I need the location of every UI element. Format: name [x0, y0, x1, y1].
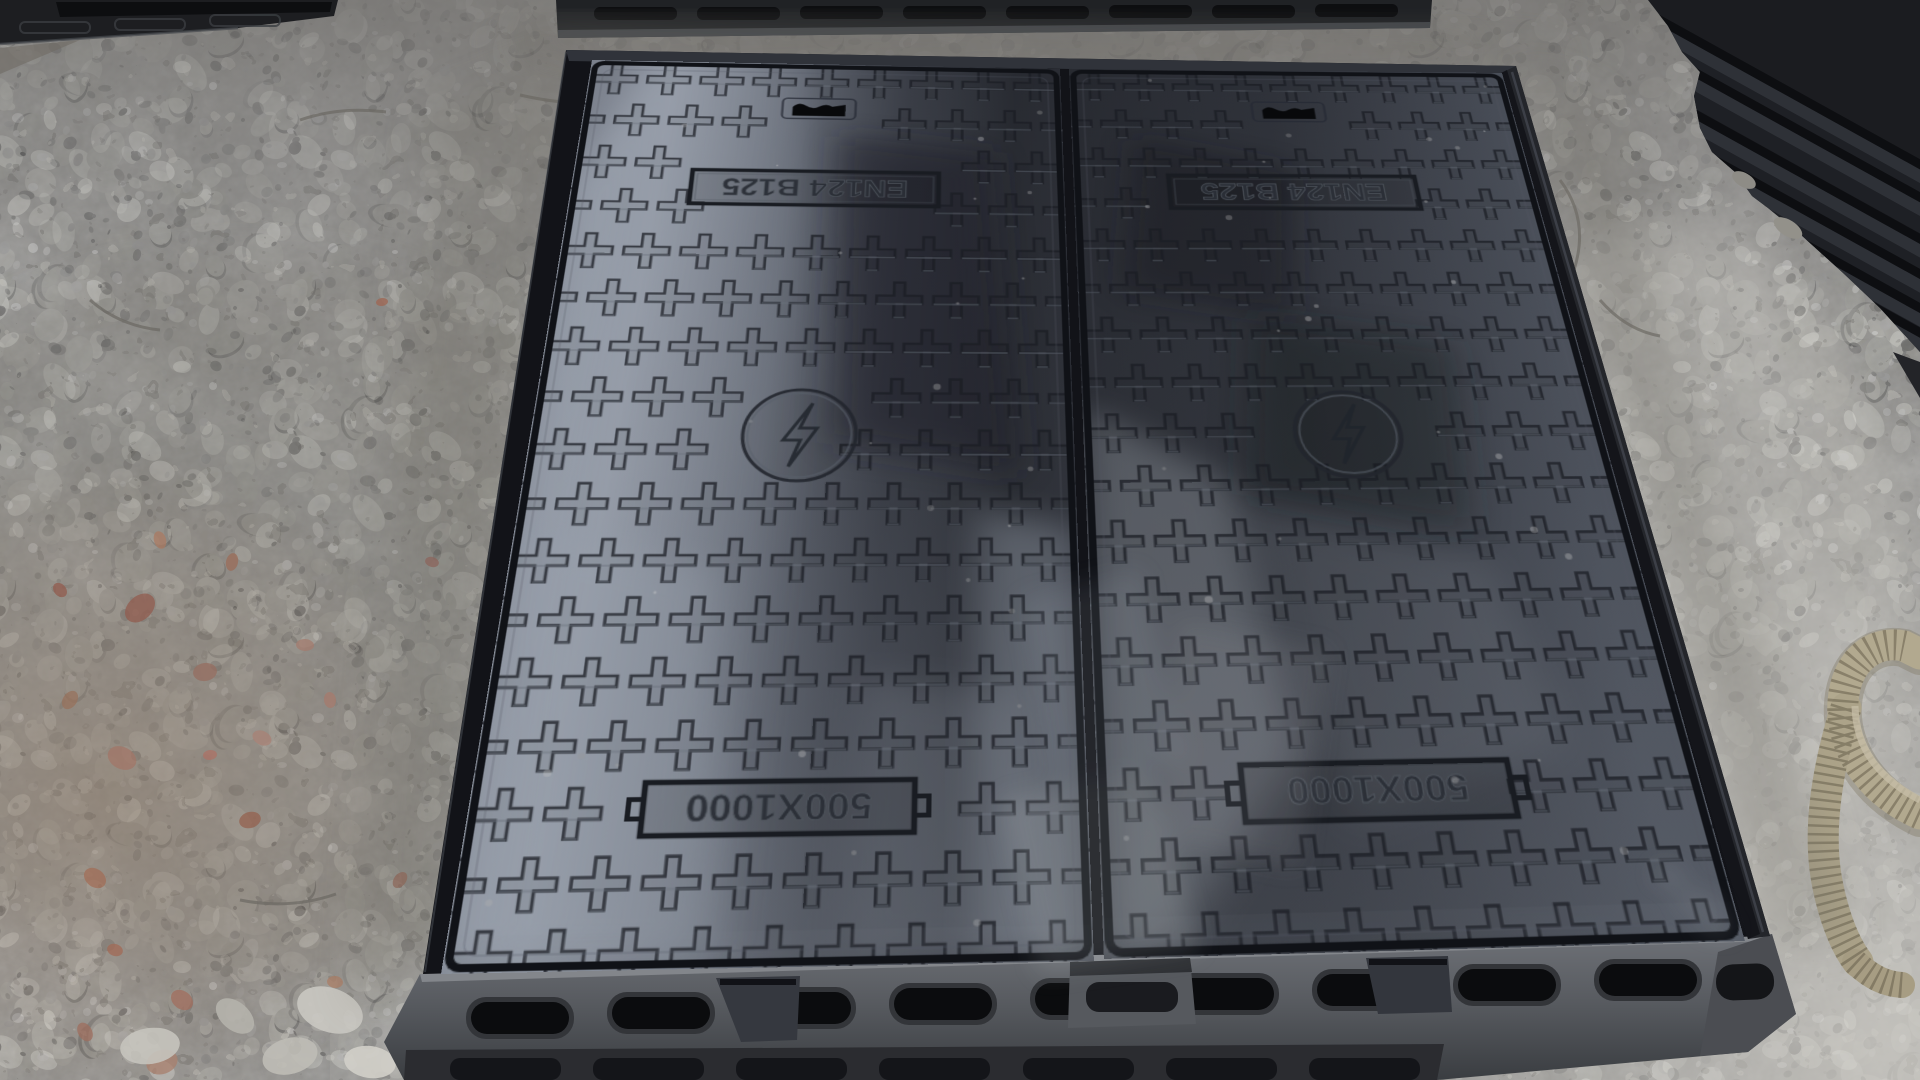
svg-text:EN124 B125: EN124 B125 [721, 173, 909, 202]
svg-text:500X1000: 500X1000 [1285, 766, 1473, 813]
svg-text:500X1000: 500X1000 [684, 785, 873, 829]
svg-text:EN124 B125: EN124 B125 [1199, 179, 1389, 205]
